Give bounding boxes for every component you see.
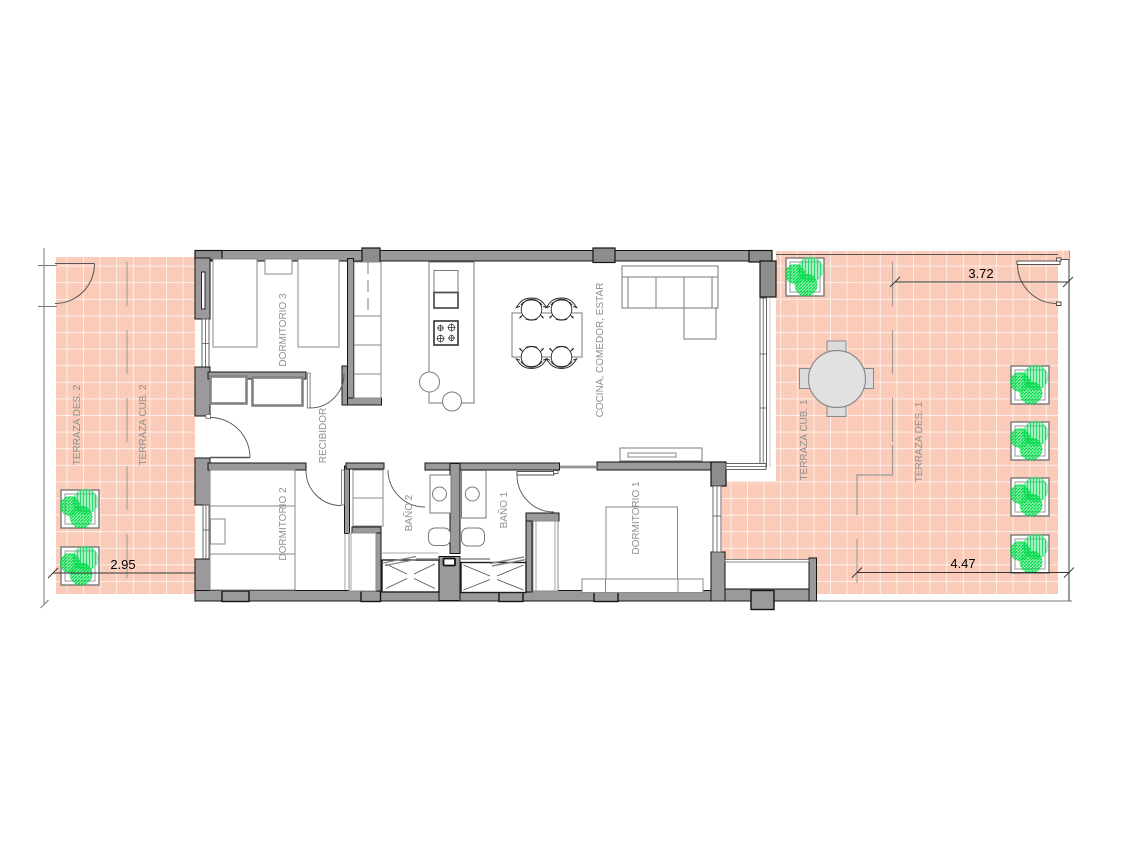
svg-text:4.47: 4.47	[950, 556, 975, 571]
svg-text:BAÑO 2: BAÑO 2	[402, 494, 415, 531]
svg-text:RECIBIDOR: RECIBIDOR	[318, 408, 329, 464]
svg-text:TERRAZA DES. 2: TERRAZA DES. 2	[72, 384, 83, 465]
svg-text:DORMITORIO 1: DORMITORIO 1	[631, 481, 642, 555]
svg-text:TERRAZA CUB. 1: TERRAZA CUB. 1	[799, 399, 810, 481]
svg-text:TERRAZA CUB. 2: TERRAZA CUB. 2	[138, 384, 149, 466]
svg-text:BAÑO 1: BAÑO 1	[497, 491, 510, 528]
svg-text:DORMITORIO 2: DORMITORIO 2	[278, 487, 289, 561]
svg-text:COCINA, COMEDOR, ESTAR: COCINA, COMEDOR, ESTAR	[595, 283, 606, 418]
svg-text:TERRAZA DES. 1: TERRAZA DES. 1	[914, 401, 925, 482]
svg-text:DORMITORIO 3: DORMITORIO 3	[278, 293, 289, 367]
svg-text:3.72: 3.72	[968, 266, 993, 281]
svg-text:2.95: 2.95	[110, 557, 135, 572]
